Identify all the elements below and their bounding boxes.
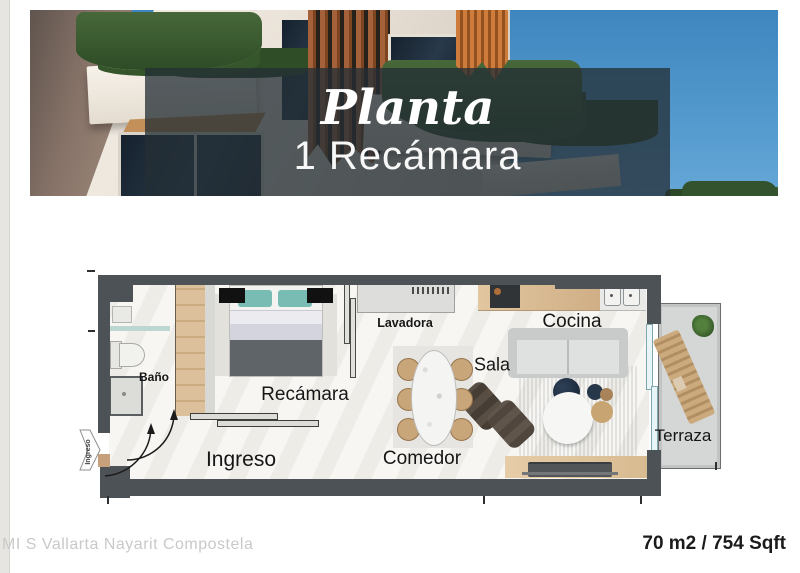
dimension-tick	[88, 330, 95, 332]
label-terraza: Terraza	[655, 426, 712, 446]
flyer-page: Planta 1 Recámara	[0, 0, 800, 573]
entry-arrow-label: Ingreso	[85, 439, 92, 464]
label-bano: Baño	[139, 370, 169, 384]
balcony-greenery	[76, 12, 262, 70]
page-edge-strip	[0, 0, 10, 573]
label-comedor: Comedor	[383, 448, 461, 470]
label-sala: Sala	[474, 355, 510, 376]
label-recamara: Recámara	[261, 384, 349, 406]
entry-arrow: Ingreso	[77, 426, 103, 474]
hero-script-title: Planta	[145, 84, 670, 132]
label-lavadora: Lavadora	[377, 316, 433, 330]
trees	[682, 181, 778, 196]
floor-plan: Ingreso Baño Recámara Lavadora Cocina Sa…	[95, 268, 721, 508]
door-swing-arcs	[95, 268, 721, 508]
hero-photo: Planta 1 Recámara	[30, 10, 778, 196]
area-size: 70 m2 / 754 Sqft	[642, 533, 786, 555]
watermark: MI S Vallarta Nayarit Compostela	[2, 536, 253, 554]
label-cocina: Cocina	[542, 311, 601, 333]
hero-subtitle: 1 Recámara	[145, 134, 670, 178]
label-ingreso: Ingreso	[206, 448, 276, 472]
dimension-tick	[87, 270, 95, 272]
